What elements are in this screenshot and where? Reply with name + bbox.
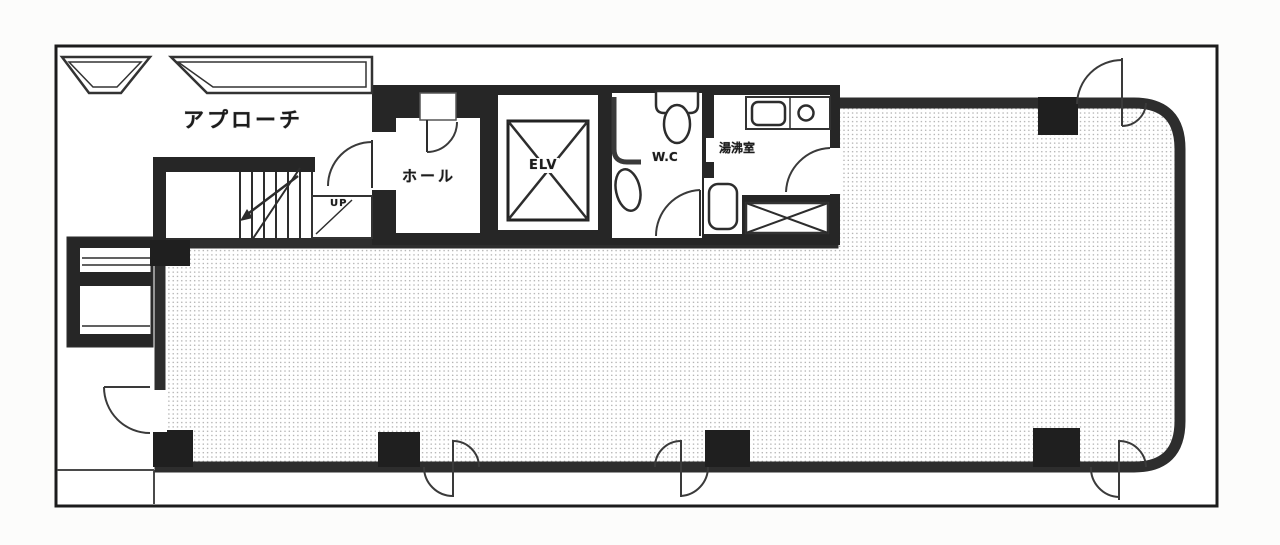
service-core-walls xyxy=(328,85,842,245)
urinal-bowl-icon xyxy=(664,105,690,143)
elevator-label: ELV xyxy=(527,158,559,173)
column xyxy=(150,240,190,266)
column xyxy=(378,432,420,467)
wc-label: W.C xyxy=(652,151,678,163)
staircase xyxy=(153,157,315,247)
mop-sink-icon xyxy=(709,184,737,229)
floor-plan-page: アプローチ ホール ELV W.C 湯沸室 UP xyxy=(0,0,1280,545)
entrance-canopy xyxy=(62,57,372,93)
approach-label: アプローチ xyxy=(183,110,303,131)
kitchenette-room xyxy=(704,95,842,234)
column xyxy=(1033,428,1080,467)
column xyxy=(153,430,193,467)
floor-plan-drawing xyxy=(0,0,1280,545)
kitchenette-label: 湯沸室 xyxy=(719,142,755,154)
column xyxy=(1038,97,1078,135)
column xyxy=(705,430,750,467)
stairs-up-label: UP xyxy=(330,199,347,209)
hall-label: ホール xyxy=(402,169,456,184)
burner-icon xyxy=(799,106,814,121)
sink-icon xyxy=(752,102,785,125)
left-exterior-structure xyxy=(68,238,152,346)
